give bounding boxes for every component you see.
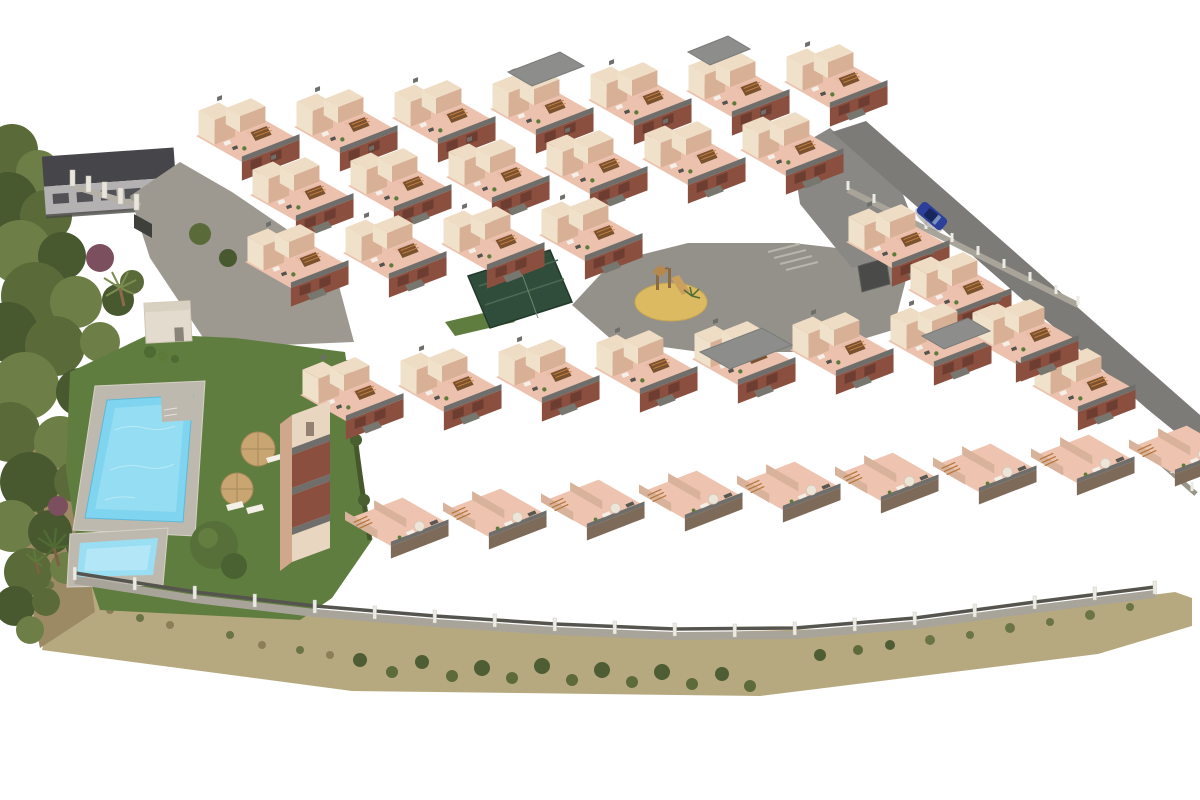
- pool-corner-deck: [161, 394, 194, 422]
- hedge-bush: [358, 494, 370, 506]
- tower-side: [280, 415, 292, 571]
- flowering-shrub: [86, 244, 114, 272]
- tree: [189, 223, 211, 245]
- tower-window: [306, 422, 314, 436]
- wall-pillar: [102, 182, 107, 198]
- round-bush: [221, 553, 247, 579]
- kids-pool-shallow: [84, 545, 151, 571]
- tree: [219, 249, 237, 267]
- wall-post: [1191, 482, 1194, 491]
- render-canvas: [0, 0, 1200, 800]
- bush: [144, 346, 156, 358]
- pool-house-door: [174, 327, 184, 341]
- bush-highlight: [198, 528, 218, 548]
- wall-pillar: [86, 176, 91, 192]
- pool-house: [144, 301, 192, 343]
- tree: [32, 588, 60, 616]
- wall-pillar: [118, 188, 123, 204]
- bush: [171, 355, 179, 363]
- front-tower: [280, 401, 330, 571]
- bush: [158, 351, 168, 361]
- flowering-shrub: [48, 496, 68, 516]
- wall-pillar: [70, 170, 75, 186]
- wall-pillar: [134, 194, 139, 210]
- playground-sand: [635, 283, 707, 321]
- aerial-render: [0, 0, 1200, 800]
- bg-building-window: [52, 193, 69, 204]
- tree: [16, 616, 44, 644]
